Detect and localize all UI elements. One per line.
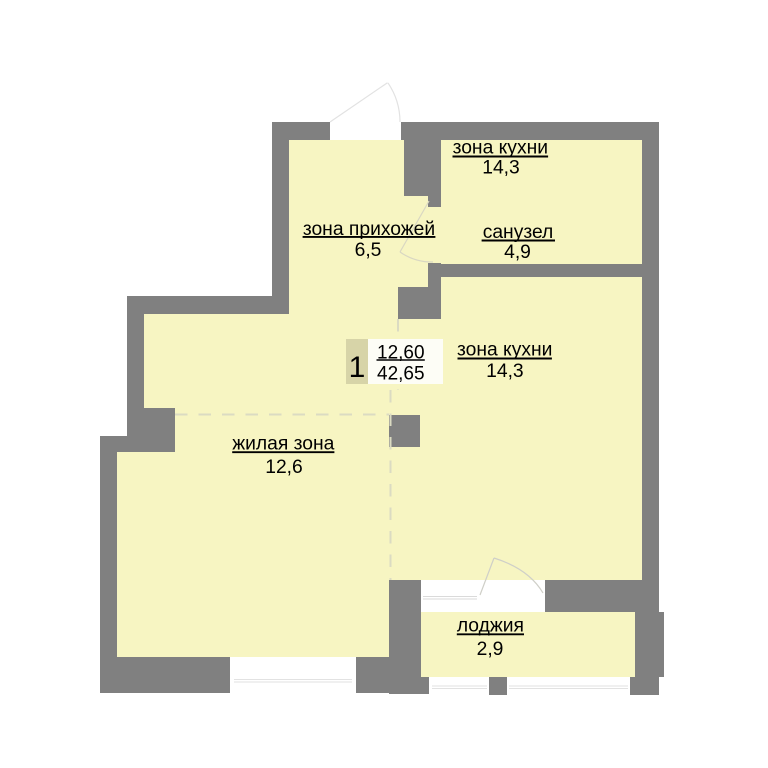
svg-text:1: 1	[349, 351, 366, 384]
svg-text:4,9: 4,9	[504, 242, 531, 263]
svg-text:зона кухни: зона кухни	[457, 340, 552, 361]
svg-text:14,3: 14,3	[486, 361, 524, 382]
svg-text:42,65: 42,65	[377, 363, 425, 384]
svg-text:12,6: 12,6	[265, 457, 303, 478]
svg-text:14,3: 14,3	[482, 158, 520, 179]
svg-text:2,9: 2,9	[477, 639, 504, 660]
svg-text:6,5: 6,5	[355, 240, 382, 261]
svg-text:зона кухни: зона кухни	[453, 137, 548, 158]
